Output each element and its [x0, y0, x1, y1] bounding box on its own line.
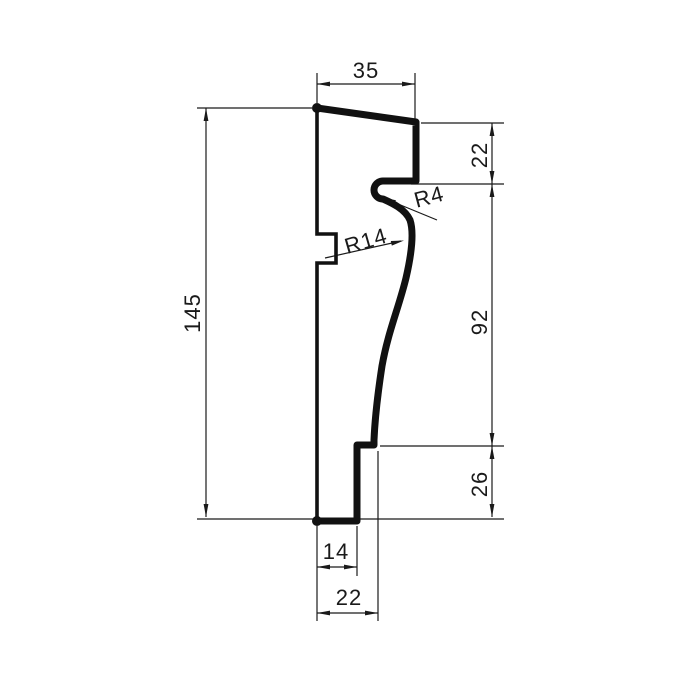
label-top-width: 35 — [353, 58, 379, 83]
label-bottom-inner-width: 14 — [323, 539, 349, 564]
arrow-145-top — [204, 108, 209, 121]
arrow-145-bottom — [204, 504, 209, 517]
extension-lines — [197, 73, 504, 621]
dimension-lines — [206, 84, 492, 613]
arrow-92-bottom — [490, 433, 495, 446]
arrow-22b-right — [365, 611, 378, 616]
profile-outline — [312, 103, 416, 526]
corner-dot-top-left — [312, 103, 322, 113]
label-right-upper: 22 — [467, 142, 492, 168]
arrow-14-left — [317, 565, 330, 570]
label-bottom-outer-width: 22 — [336, 585, 362, 610]
arrow-22r-bottom — [490, 171, 495, 184]
profile-face-edge — [317, 108, 416, 521]
arrow-35-right — [402, 82, 415, 87]
label-radius-large: R14 — [342, 223, 391, 259]
arrow-35-left — [317, 82, 330, 87]
corner-dot-bottom-left — [312, 516, 322, 526]
arrow-22b-left — [317, 611, 330, 616]
arrow-22r-top — [490, 123, 495, 136]
arrow-92-top — [490, 184, 495, 197]
arrow-26-bottom — [490, 504, 495, 517]
label-right-middle: 92 — [467, 309, 492, 335]
profile-drawing-svg: 35 145 22 92 26 14 22 R4 R14 — [0, 0, 686, 686]
label-radius-small: R4 — [411, 181, 447, 213]
label-left-total-height: 145 — [180, 293, 205, 333]
profile-back-edge-with-notch — [317, 108, 336, 521]
arrow-r14 — [391, 238, 405, 245]
arrow-14-right — [344, 565, 357, 570]
arrow-26-top — [490, 446, 495, 459]
drawing-canvas: 35 145 22 92 26 14 22 R4 R14 — [0, 0, 686, 686]
dimension-arrows — [204, 82, 495, 616]
dimension-labels: 35 145 22 92 26 14 22 R4 R14 — [180, 58, 492, 610]
label-right-lower: 26 — [467, 471, 492, 497]
